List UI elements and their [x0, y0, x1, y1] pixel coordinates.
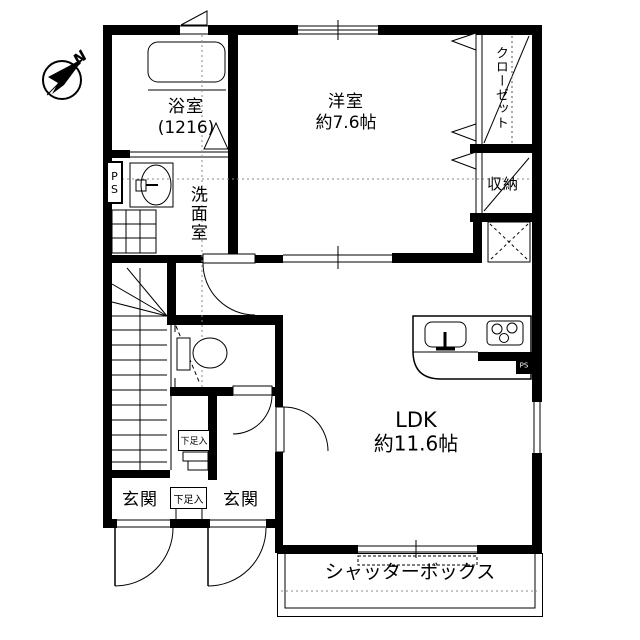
- washbasin-icon: [130, 163, 173, 207]
- entrance-right-label: 玄関: [223, 492, 259, 510]
- ldk-size-label: 約11.6帖: [374, 434, 459, 455]
- wall-segment: [103, 519, 117, 528]
- vent-icon: [180, 11, 208, 34]
- wall-segment: [103, 25, 180, 35]
- stove-icon: [487, 321, 523, 345]
- wall-segment: [532, 453, 542, 553]
- shoe-cabinet-lower-box: 下足入: [170, 487, 207, 509]
- floorplan-linework: [0, 0, 640, 640]
- pipe-space-right-label: PS: [520, 362, 529, 369]
- pipe-space-left-box: PS: [106, 161, 123, 204]
- shoe-steps: [176, 452, 208, 520]
- shoe-cabinet-upper-box: 下足入: [178, 430, 210, 451]
- wall-segment: [275, 315, 283, 407]
- wall-segment: [167, 263, 176, 325]
- floorplan: PS 下足入 下足入 N 浴室 (1216) 洗面室 洋室 約7.6帖 クローゼ…: [0, 0, 640, 640]
- bathtub-icon: [148, 42, 226, 90]
- wall-segment: [103, 25, 112, 522]
- washer-pan-icon: [112, 210, 156, 253]
- entrance-left-label: 玄関: [122, 492, 158, 510]
- duct-void-icon: [488, 222, 530, 262]
- ldk-door: [276, 407, 328, 452]
- sliding-door-western-ldk: [283, 246, 392, 269]
- toilet-icon: [175, 323, 227, 387]
- stairs: [112, 268, 171, 478]
- bathroom-label: 浴室: [168, 99, 204, 117]
- western-room-label: 洋室: [328, 94, 364, 112]
- wall-segment: [103, 150, 130, 158]
- wall-segment: [470, 144, 532, 153]
- wall-segment: [477, 545, 532, 553]
- wall-segment: [283, 545, 358, 553]
- wall-segment: [255, 255, 283, 263]
- wall-segment: [470, 213, 542, 222]
- wall-segment: [392, 253, 482, 263]
- storage-label: 収納: [487, 177, 519, 193]
- shoe-cabinet-lower-label: 下足入: [174, 491, 204, 506]
- pipe-space-left-label: PS: [109, 170, 120, 196]
- wall-segment: [103, 470, 170, 478]
- ldk-label: LDK: [395, 409, 437, 431]
- wall-segment: [170, 315, 283, 325]
- wall-segment: [103, 255, 203, 263]
- western-room-size-label: 約7.6帖: [315, 115, 376, 133]
- bathroom-size-label: (1216): [158, 120, 215, 138]
- kitchen-counter-icon: [413, 316, 532, 379]
- washroom-label: 洗面室: [187, 186, 205, 243]
- shoe-cabinet-upper-label: 下足入: [180, 434, 207, 447]
- wall-segment: [378, 25, 542, 35]
- hall-door: [233, 386, 272, 434]
- entry-door-left: [115, 520, 173, 586]
- shutter-box-label: シャッターボックス: [325, 563, 495, 583]
- wall-segment: [228, 25, 238, 263]
- wall-segment: [170, 519, 210, 528]
- wall-segment: [170, 387, 233, 396]
- wall-segment: [208, 25, 298, 35]
- entry-door-right: [208, 520, 266, 586]
- washroom-door: [203, 254, 255, 315]
- closet-label: クローゼット: [493, 46, 507, 130]
- window-top: [298, 20, 378, 40]
- window-right: [532, 402, 542, 453]
- wall-segment: [275, 452, 283, 553]
- sink-icon: [425, 322, 466, 350]
- wall-segment: [266, 519, 283, 528]
- north-label: N: [71, 48, 92, 69]
